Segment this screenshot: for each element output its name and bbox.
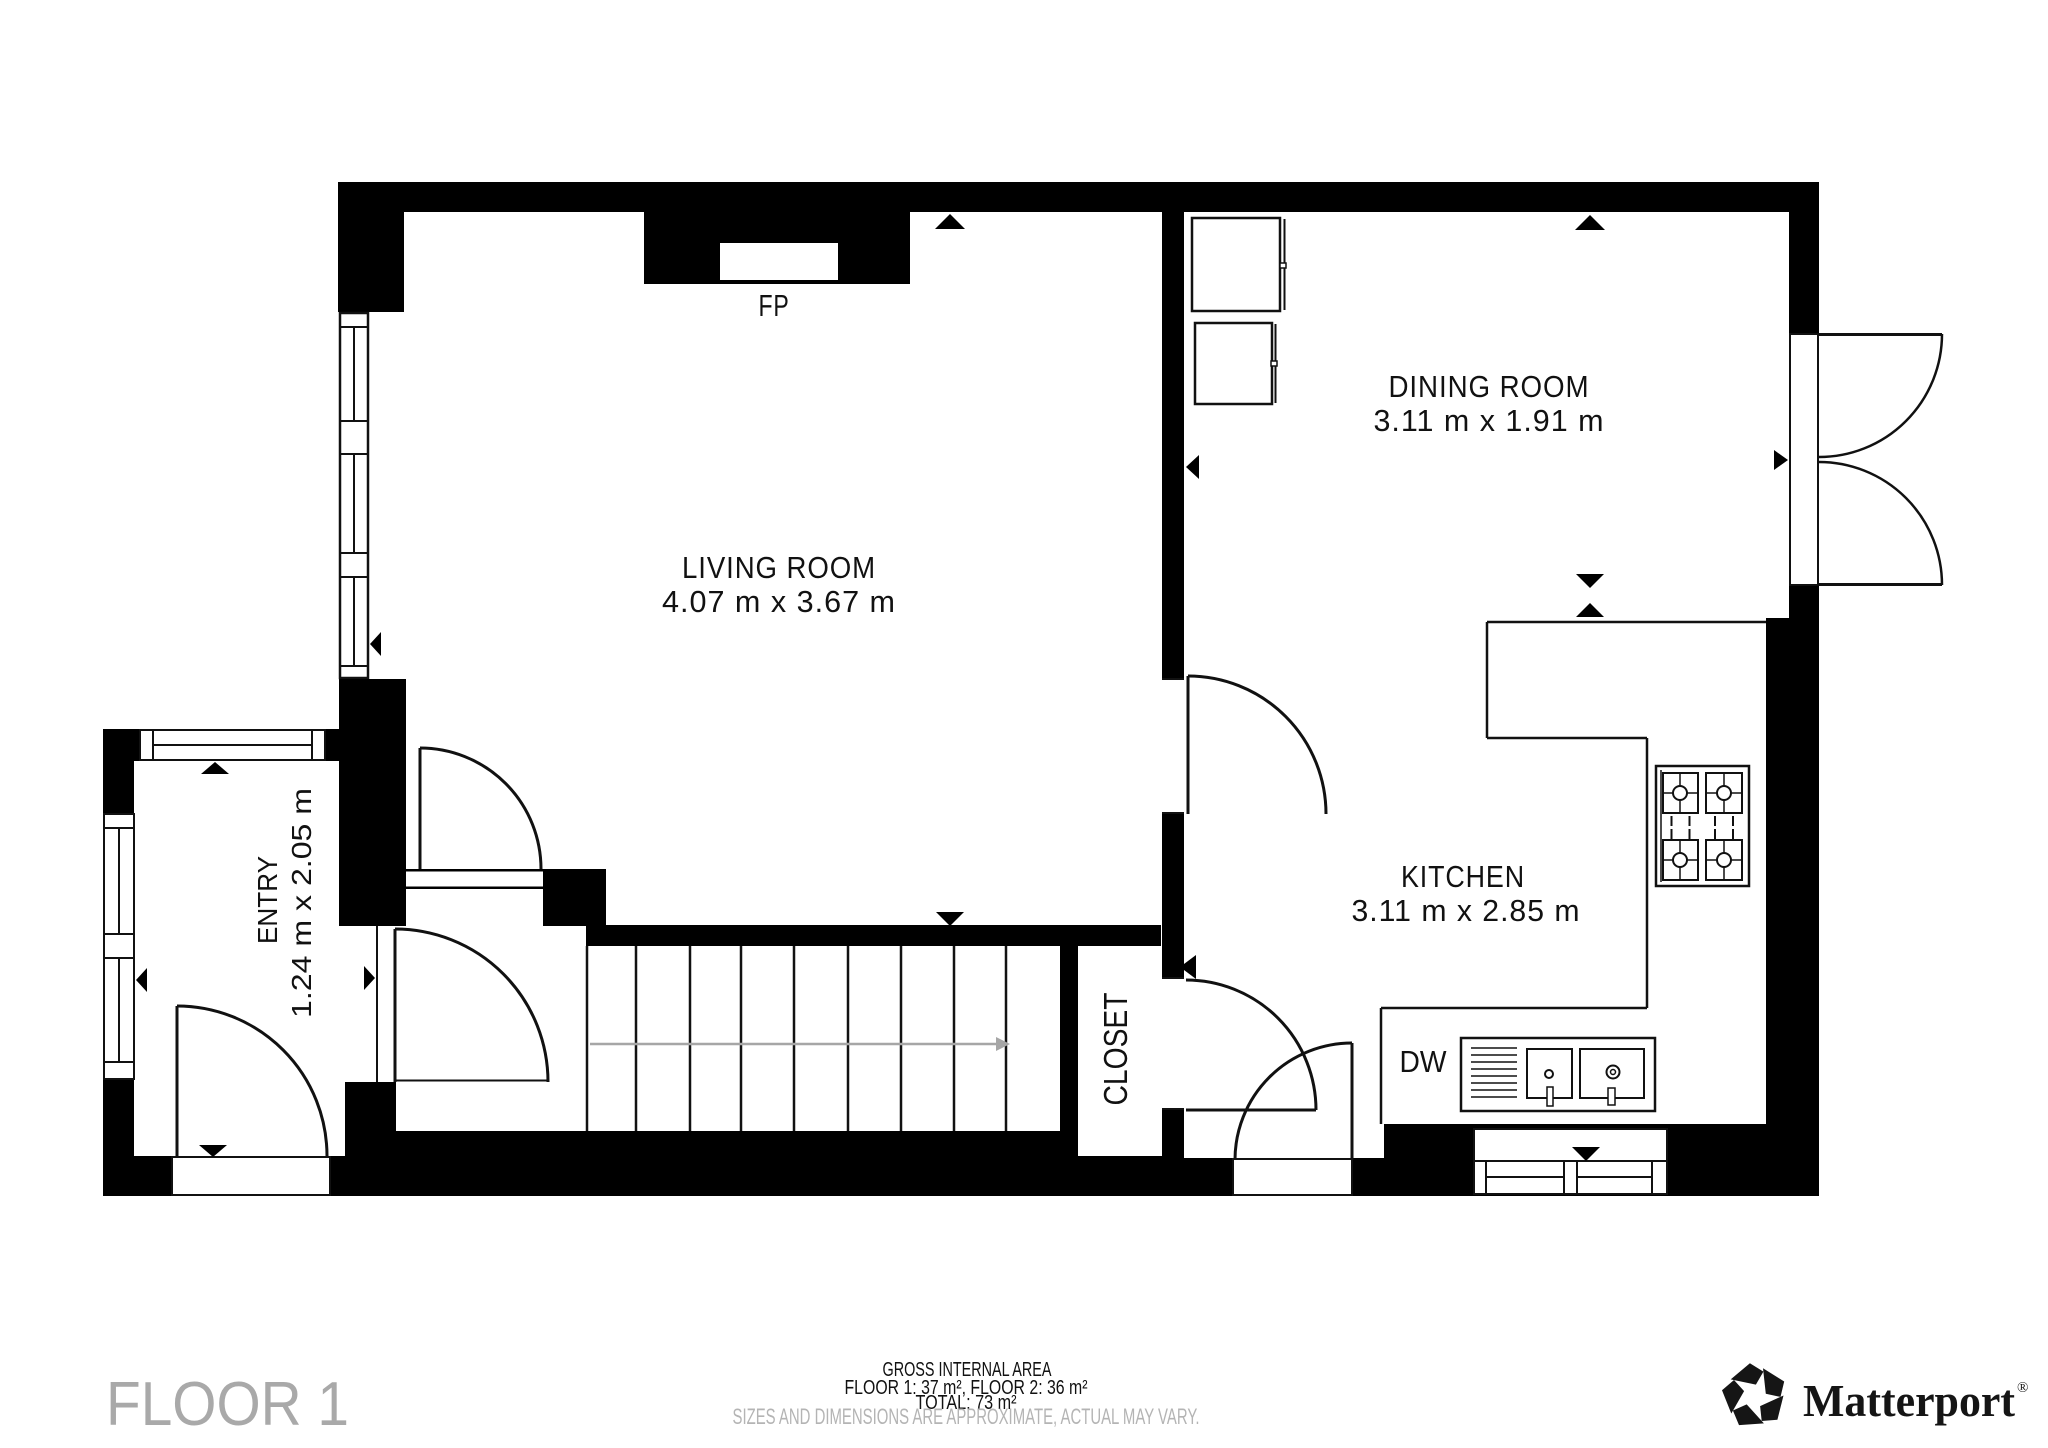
svg-text:KITCHEN: KITCHEN bbox=[1401, 859, 1525, 894]
svg-text:1.24 m x 2.05 m: 1.24 m x 2.05 m bbox=[286, 788, 317, 1018]
svg-text:CLOSET: CLOSET bbox=[1097, 993, 1134, 1106]
svg-text:FLOOR 1: FLOOR 1 bbox=[106, 1370, 349, 1439]
svg-text:DINING ROOM: DINING ROOM bbox=[1389, 369, 1590, 404]
svg-text:SIZES AND DIMENSIONS ARE APPRO: SIZES AND DIMENSIONS ARE APPROXIMATE, AC… bbox=[733, 1404, 1200, 1429]
svg-text:FP: FP bbox=[759, 288, 790, 323]
svg-text:LIVING ROOM: LIVING ROOM bbox=[682, 550, 876, 585]
svg-text:DW: DW bbox=[1400, 1044, 1448, 1079]
svg-text:3.11 m x 1.91 m: 3.11 m x 1.91 m bbox=[1374, 403, 1605, 438]
svg-text:3.11 m x 2.85 m: 3.11 m x 2.85 m bbox=[1352, 893, 1581, 928]
svg-text:®: ® bbox=[2017, 1380, 2028, 1396]
svg-text:Matterport: Matterport bbox=[1803, 1375, 2016, 1426]
svg-text:ENTRY: ENTRY bbox=[252, 856, 283, 944]
svg-text:4.07 m x 3.67 m: 4.07 m x 3.67 m bbox=[662, 584, 896, 619]
